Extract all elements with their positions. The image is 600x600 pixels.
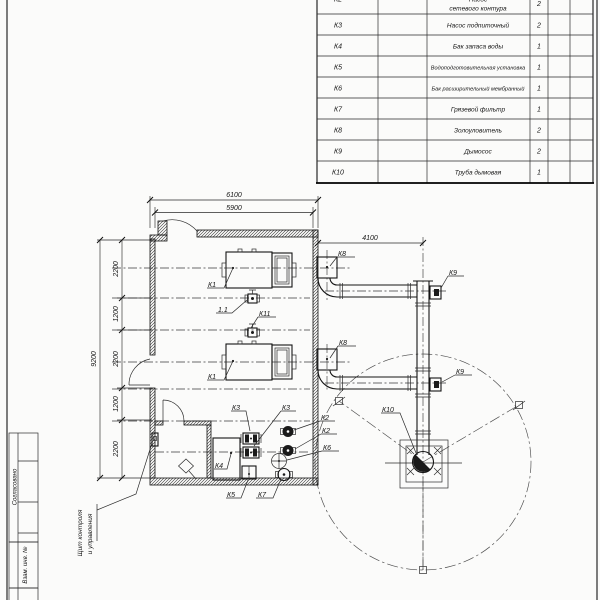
boiler-room-drawing-sheet: Согласовано Взам. инв. № К2 Насос сетево… bbox=[0, 0, 600, 600]
row-name: Бак запаса воды bbox=[453, 43, 504, 51]
svg-text:4100: 4100 bbox=[362, 235, 378, 242]
row-pos: К6 bbox=[334, 86, 342, 93]
row-qty: 2 bbox=[536, 23, 541, 30]
control-panel-label-line1: Щит контроля bbox=[77, 509, 84, 556]
svg-text:6100: 6100 bbox=[226, 192, 242, 199]
row-pos: К9 bbox=[334, 149, 342, 156]
row-qty: 1 bbox=[537, 65, 541, 72]
row-qty: 1 bbox=[537, 170, 541, 177]
control-panel-label-line2: и управления bbox=[87, 513, 94, 554]
svg-text:9200: 9200 bbox=[91, 351, 98, 367]
row-name: Труба дымовая bbox=[455, 169, 502, 177]
replace-inv-label: Взам. инв. № bbox=[22, 546, 29, 584]
svg-text:1200: 1200 bbox=[113, 396, 120, 412]
row-pos: К8 bbox=[334, 128, 342, 135]
row-pos: К7 bbox=[334, 107, 343, 114]
row-name: Золоуловитель bbox=[454, 128, 502, 135]
svg-text:2200: 2200 bbox=[113, 261, 120, 278]
row-qty: 1 bbox=[537, 44, 541, 51]
row-name: Насос подпиточный bbox=[447, 22, 510, 30]
row-name-line1: Насос bbox=[469, 0, 488, 4]
row-name: Грязевой фильтр bbox=[451, 106, 506, 114]
svg-text:1200: 1200 bbox=[113, 306, 120, 322]
row-name: Бак расширительный мембранный bbox=[432, 86, 525, 93]
row-pos: К2 bbox=[334, 0, 342, 4]
row-name: Водоподготовительная установка bbox=[431, 66, 525, 72]
row-pos: К4 bbox=[334, 44, 342, 51]
row-qty: 1 bbox=[537, 86, 541, 93]
row-qty: 2 bbox=[536, 1, 541, 8]
row-name-line2: сетевого контура bbox=[449, 6, 507, 13]
row-name: Дымосос bbox=[463, 149, 492, 156]
row-qty: 1 bbox=[537, 107, 541, 114]
expansion-tank-icon bbox=[272, 454, 287, 469]
approved-label: Согласовано bbox=[13, 468, 19, 505]
row-pos: К5 bbox=[334, 65, 342, 72]
svg-text:2200: 2200 bbox=[113, 351, 120, 368]
row-qty: 2 bbox=[536, 128, 541, 135]
svg-text:2200: 2200 bbox=[113, 441, 120, 458]
row-pos: К10 bbox=[332, 170, 344, 177]
row-qty: 2 bbox=[536, 149, 541, 156]
svg-text:5900: 5900 bbox=[226, 205, 242, 212]
row-pos: К3 bbox=[334, 23, 342, 30]
